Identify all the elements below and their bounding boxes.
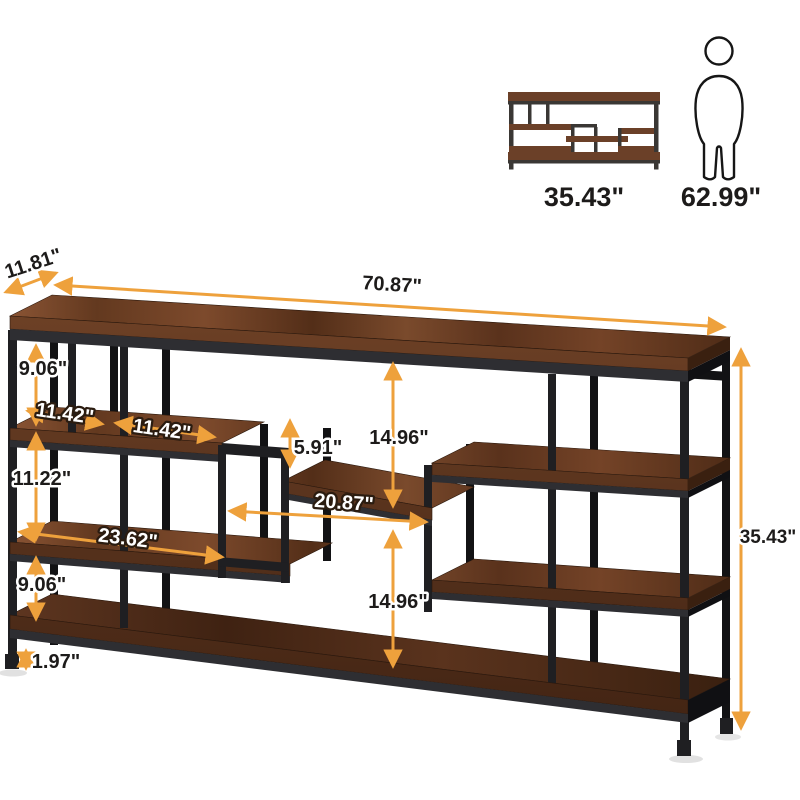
console-table-dimension-diagram: 11.81" 70.87" 9.06" 11.42" 11.42" 5.91" … (0, 0, 800, 800)
reference-shelf-width-label: 35.43" (544, 182, 624, 212)
bottom-clearance-label: 1.97" (32, 651, 80, 673)
width-label: 70.87" (362, 272, 423, 298)
right-outer-post (680, 378, 689, 755)
right-box-post (424, 465, 432, 612)
center-upper-gap-label: 14.96" (369, 427, 429, 449)
person-icon (695, 38, 742, 180)
shelf-gap-small-label: 5.91" (294, 437, 342, 459)
middle-shelf-label: 20.87" (313, 490, 374, 516)
center-lower-gap-label: 14.96" (368, 591, 428, 613)
left-middle-gap-label: 11.22" (13, 468, 71, 490)
right-foot (677, 740, 691, 756)
top-left-gap-label: 9.06" (19, 358, 67, 380)
left-foot (5, 654, 19, 669)
divider-post-2 (120, 344, 128, 628)
reference-shelf-icon (508, 92, 660, 170)
right-center-post (548, 374, 556, 692)
person-height-label: 62.99" (681, 182, 761, 212)
overall-height-label: 35.43" (740, 527, 797, 548)
left-lower-gap-label: 9.06" (18, 574, 66, 596)
depth-label: 11.81" (2, 244, 64, 283)
